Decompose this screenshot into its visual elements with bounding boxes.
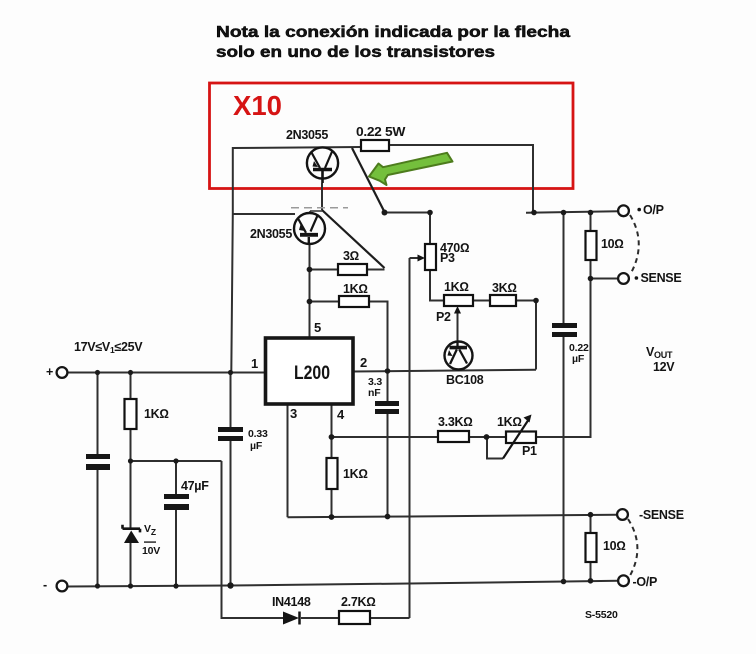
svg-text:SENSE: SENSE — [641, 271, 682, 285]
svg-text:3: 3 — [290, 406, 297, 421]
svg-text:1KΩ: 1KΩ — [144, 407, 169, 421]
svg-text:10Ω: 10Ω — [603, 539, 626, 553]
svg-text:2N3055: 2N3055 — [250, 227, 292, 241]
svg-text:P1: P1 — [522, 444, 537, 458]
svg-text:17V≤V1≤25V: 17V≤V1≤25V — [74, 340, 143, 355]
svg-text:-SENSE: -SENSE — [639, 508, 684, 522]
svg-text:2.7KΩ: 2.7KΩ — [341, 595, 376, 609]
svg-text:1KΩ: 1KΩ — [343, 282, 368, 296]
svg-text:nF: nF — [368, 387, 381, 399]
svg-text:µF: µF — [250, 440, 263, 452]
svg-text:µF: µF — [572, 353, 585, 365]
svg-text:Nota la conexión indicada por: Nota la conexión indicada por la flecha — [216, 24, 570, 41]
svg-text:P2: P2 — [436, 310, 451, 324]
svg-text:3Ω: 3Ω — [343, 249, 359, 263]
svg-text:12V: 12V — [653, 360, 675, 374]
svg-text:0.22 5W: 0.22 5W — [356, 125, 406, 139]
svg-text:+: + — [46, 365, 53, 379]
svg-text:4: 4 — [337, 407, 345, 422]
svg-text:10V: 10V — [142, 545, 160, 557]
svg-text:X10: X10 — [233, 90, 282, 121]
svg-text:VZ: VZ — [144, 523, 156, 537]
svg-text:IN4148: IN4148 — [272, 595, 311, 609]
svg-text:2: 2 — [360, 355, 367, 370]
svg-text:BC108: BC108 — [446, 373, 484, 387]
svg-text:-: - — [43, 578, 47, 592]
svg-text:1KΩ: 1KΩ — [444, 280, 469, 294]
svg-text:47µF: 47µF — [181, 479, 209, 493]
svg-text:1KΩ: 1KΩ — [343, 467, 368, 481]
svg-text:1KΩ: 1KΩ — [497, 415, 522, 429]
svg-text:3.3KΩ: 3.3KΩ — [438, 415, 473, 429]
svg-text:solo en uno de los transistore: solo en uno de los transistores — [216, 44, 495, 61]
svg-text:VOUT: VOUT — [646, 345, 673, 360]
svg-text:3KΩ: 3KΩ — [492, 281, 517, 295]
svg-text:-O/P: -O/P — [633, 575, 658, 589]
svg-text:0.33: 0.33 — [248, 428, 268, 440]
svg-text:1: 1 — [251, 356, 258, 371]
svg-text:5: 5 — [314, 320, 321, 335]
svg-text:S-5520: S-5520 — [585, 609, 618, 621]
svg-text:O/P: O/P — [643, 203, 664, 217]
svg-text:10Ω: 10Ω — [601, 237, 624, 251]
svg-text:P3: P3 — [440, 251, 455, 265]
svg-text:L200: L200 — [294, 363, 330, 384]
svg-text:2N3055: 2N3055 — [286, 128, 328, 142]
